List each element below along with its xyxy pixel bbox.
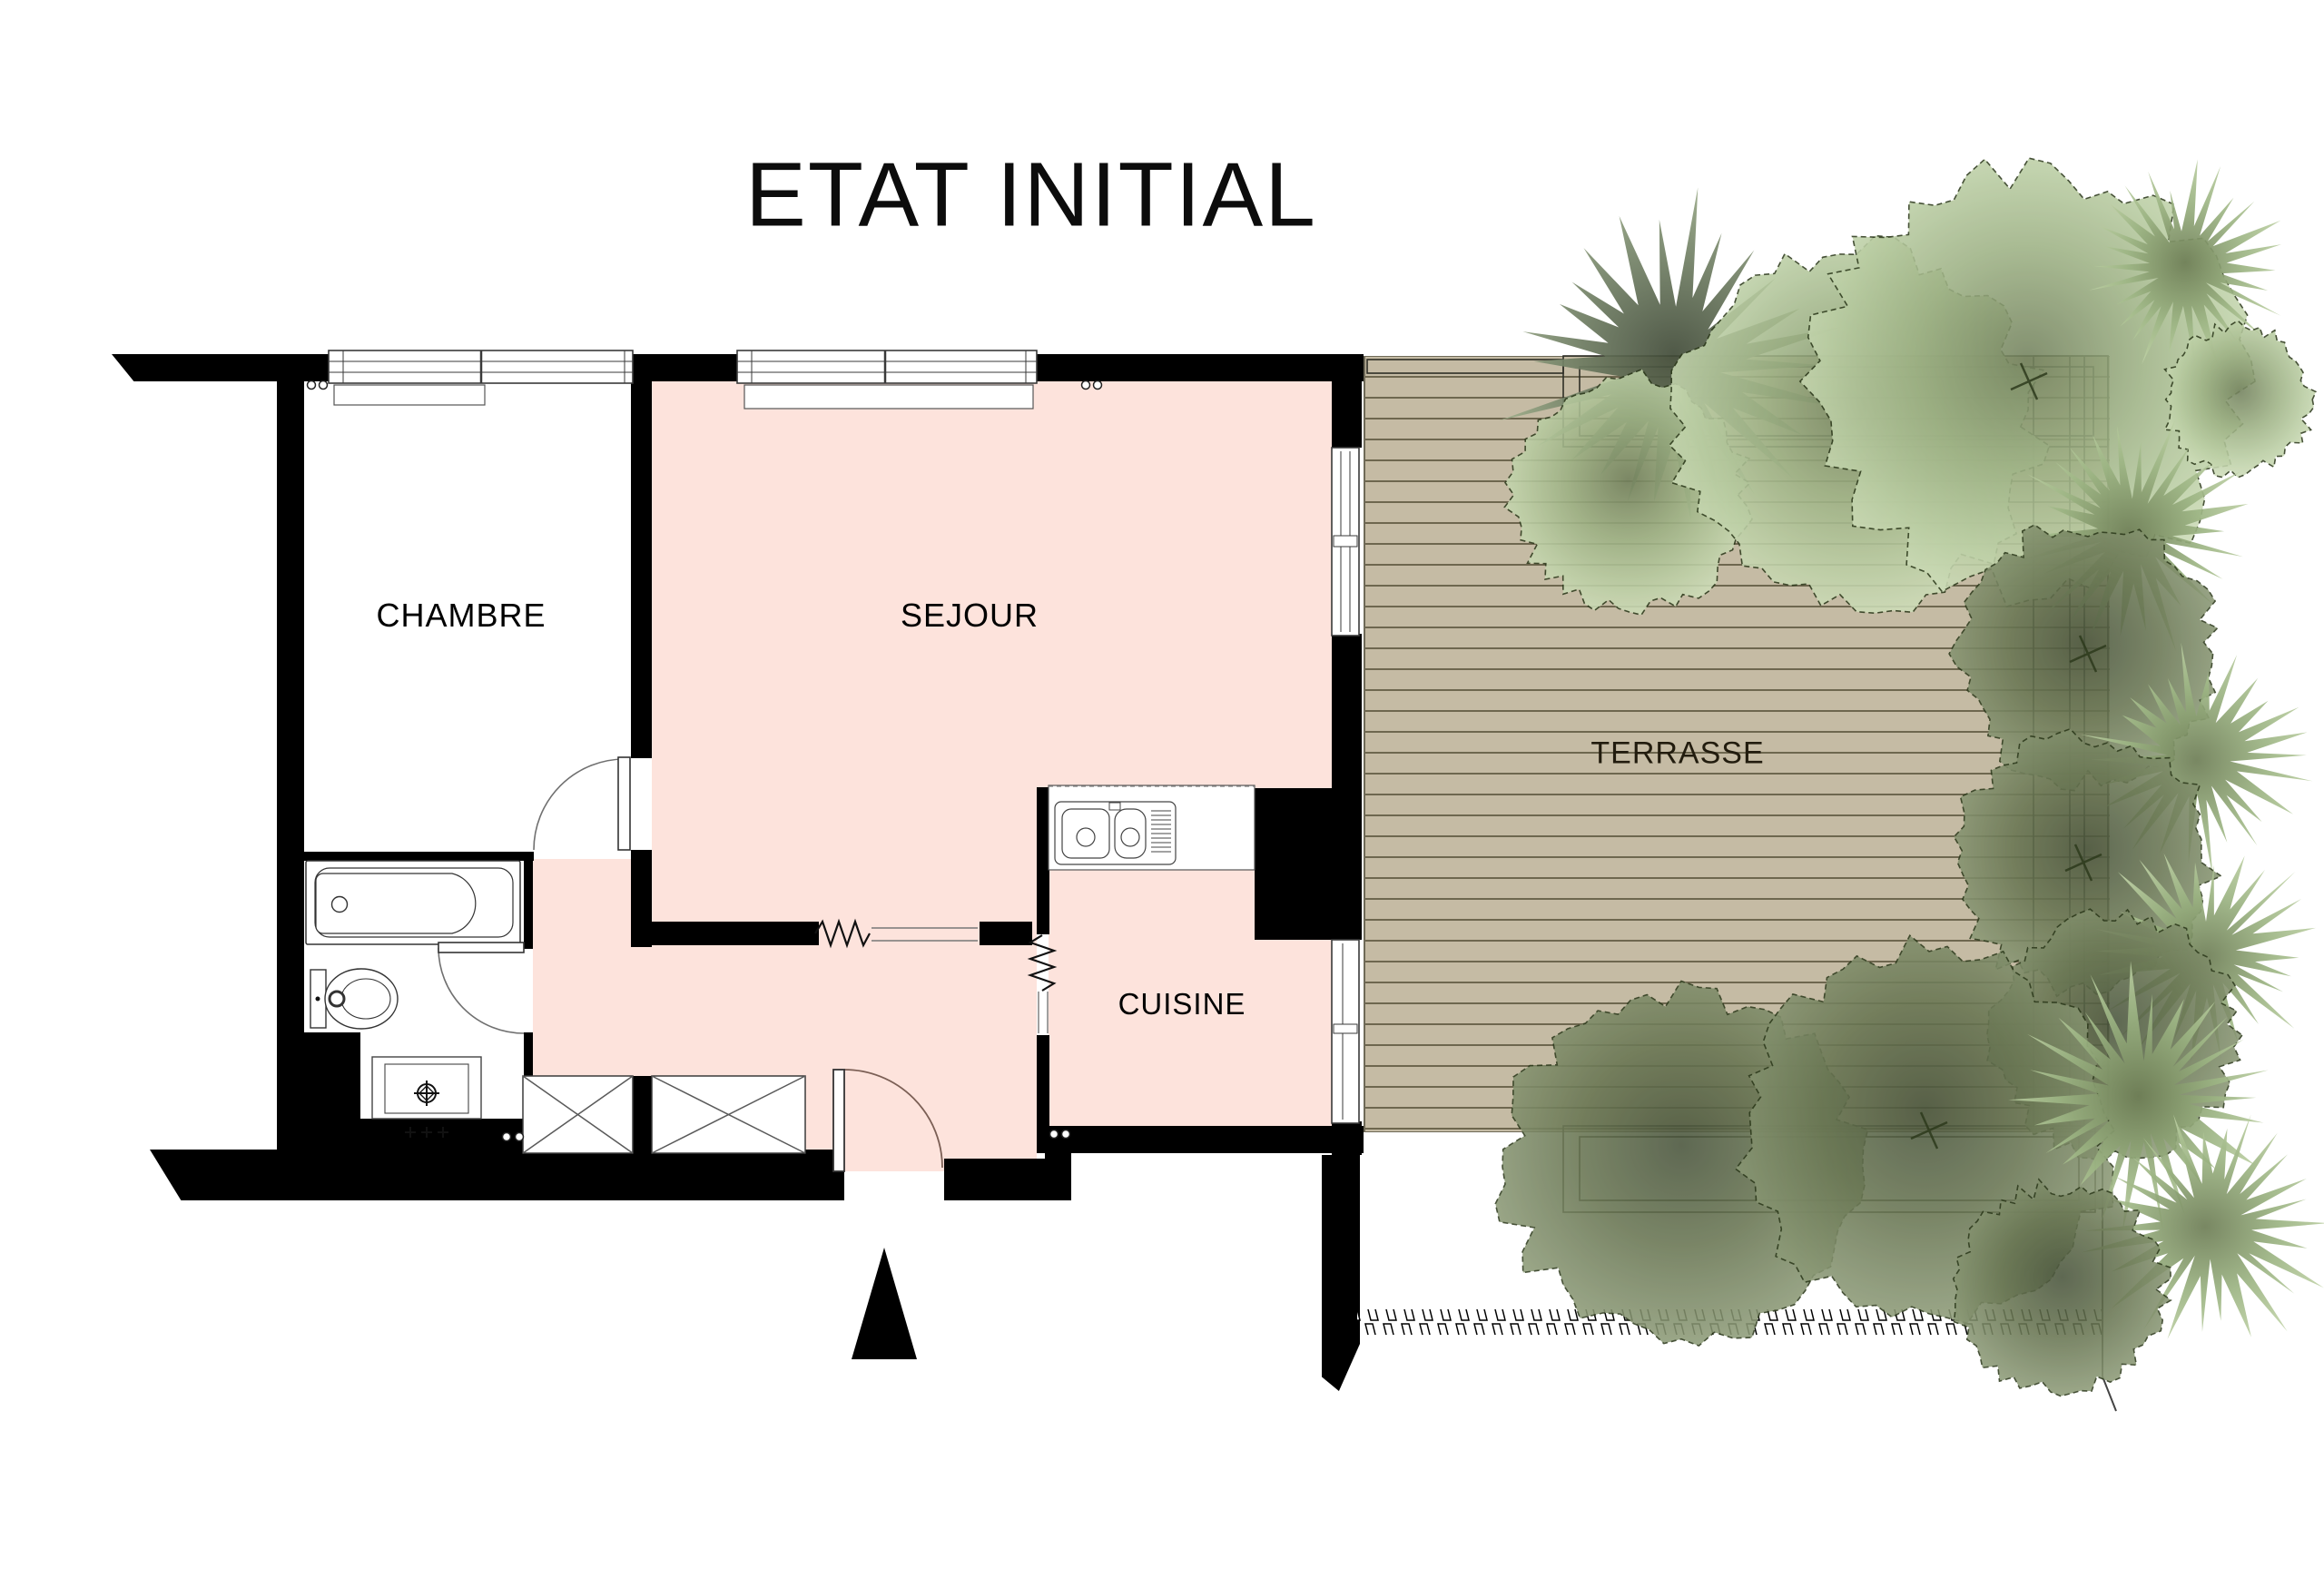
room-label-cuisine: CUISINE: [1118, 987, 1246, 1021]
sejour-window: [737, 350, 1037, 383]
bathtub: [306, 861, 520, 944]
entry-door: [833, 1070, 942, 1171]
page-title: ETAT INITIAL: [745, 143, 1317, 248]
passage-lines: [871, 928, 1048, 1033]
washing-machine: [372, 1057, 481, 1138]
chambre-door: [534, 757, 630, 850]
entry-arrow: [852, 1248, 917, 1359]
washer-plus-marks: [405, 1127, 448, 1138]
spring-horizontal: [815, 922, 870, 945]
kitchen-sink: [1055, 802, 1176, 864]
vegetation: [1495, 158, 2324, 1396]
sejour-radiator: [744, 385, 1033, 409]
closet-2: [652, 1076, 805, 1153]
room-label-terrasse: TERRASSE: [1590, 736, 1764, 772]
terrace-door: [1332, 940, 1359, 1123]
floor-plan: ETAT INITIAL CHAMBRE SEJOUR CUISINE TERR…: [0, 0, 2324, 1589]
bathroom-door: [438, 943, 524, 1033]
planter-strip: [1367, 360, 1563, 373]
room-label-sejour: SEJOUR: [901, 597, 1039, 635]
opening-spring-symbols: [815, 922, 1054, 991]
toilet: [310, 969, 398, 1029]
sejour-terrace-window: [1332, 448, 1359, 636]
detail-circles: [308, 381, 1102, 1141]
spring-vertical: [1030, 935, 1054, 991]
kitchen-counter: [1049, 785, 1255, 870]
closets: [523, 1076, 805, 1153]
chambre-window: [329, 350, 633, 383]
room-label-chambre: CHAMBRE: [376, 597, 546, 635]
chambre-radiator: [334, 385, 485, 405]
closet-1: [523, 1076, 633, 1153]
